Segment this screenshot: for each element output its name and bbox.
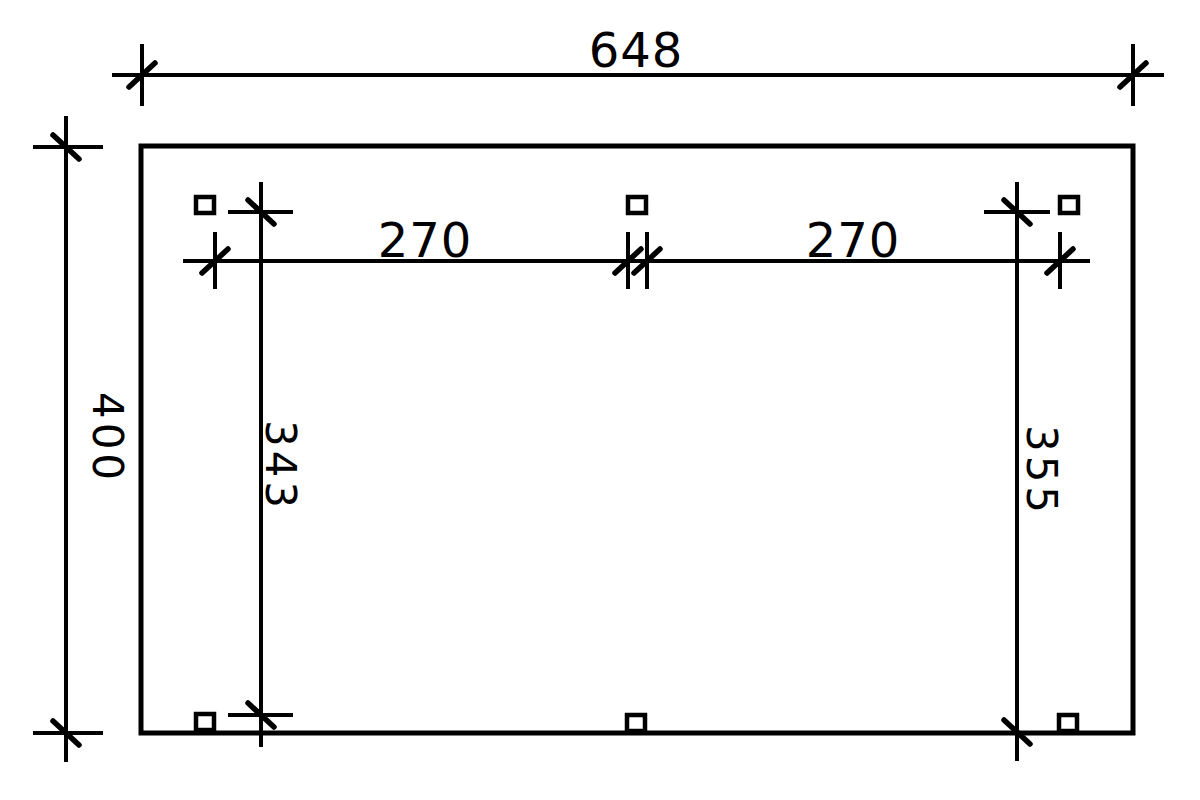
post-top-middle bbox=[628, 197, 646, 213]
dim-label-right-post: 355 bbox=[1020, 425, 1062, 517]
post-bottom-middle bbox=[627, 715, 645, 731]
dim-label-right-bay: 270 bbox=[806, 216, 901, 264]
floor-plan-linework bbox=[0, 0, 1200, 800]
dim-label-total-height: 400 bbox=[86, 392, 128, 484]
post-bottom-left bbox=[196, 714, 214, 730]
post-bottom-right bbox=[1059, 715, 1077, 731]
dim-label-left-post: 343 bbox=[259, 420, 301, 512]
post-top-right bbox=[1060, 197, 1078, 213]
dim-label-total-width: 648 bbox=[589, 26, 684, 74]
dim-line-bays bbox=[183, 232, 1090, 289]
post-top-left bbox=[196, 197, 214, 213]
technical-drawing-canvas: 648 270 270 400 343 355 bbox=[0, 0, 1200, 800]
post-markers bbox=[196, 197, 1078, 731]
dim-label-left-bay: 270 bbox=[378, 216, 473, 264]
